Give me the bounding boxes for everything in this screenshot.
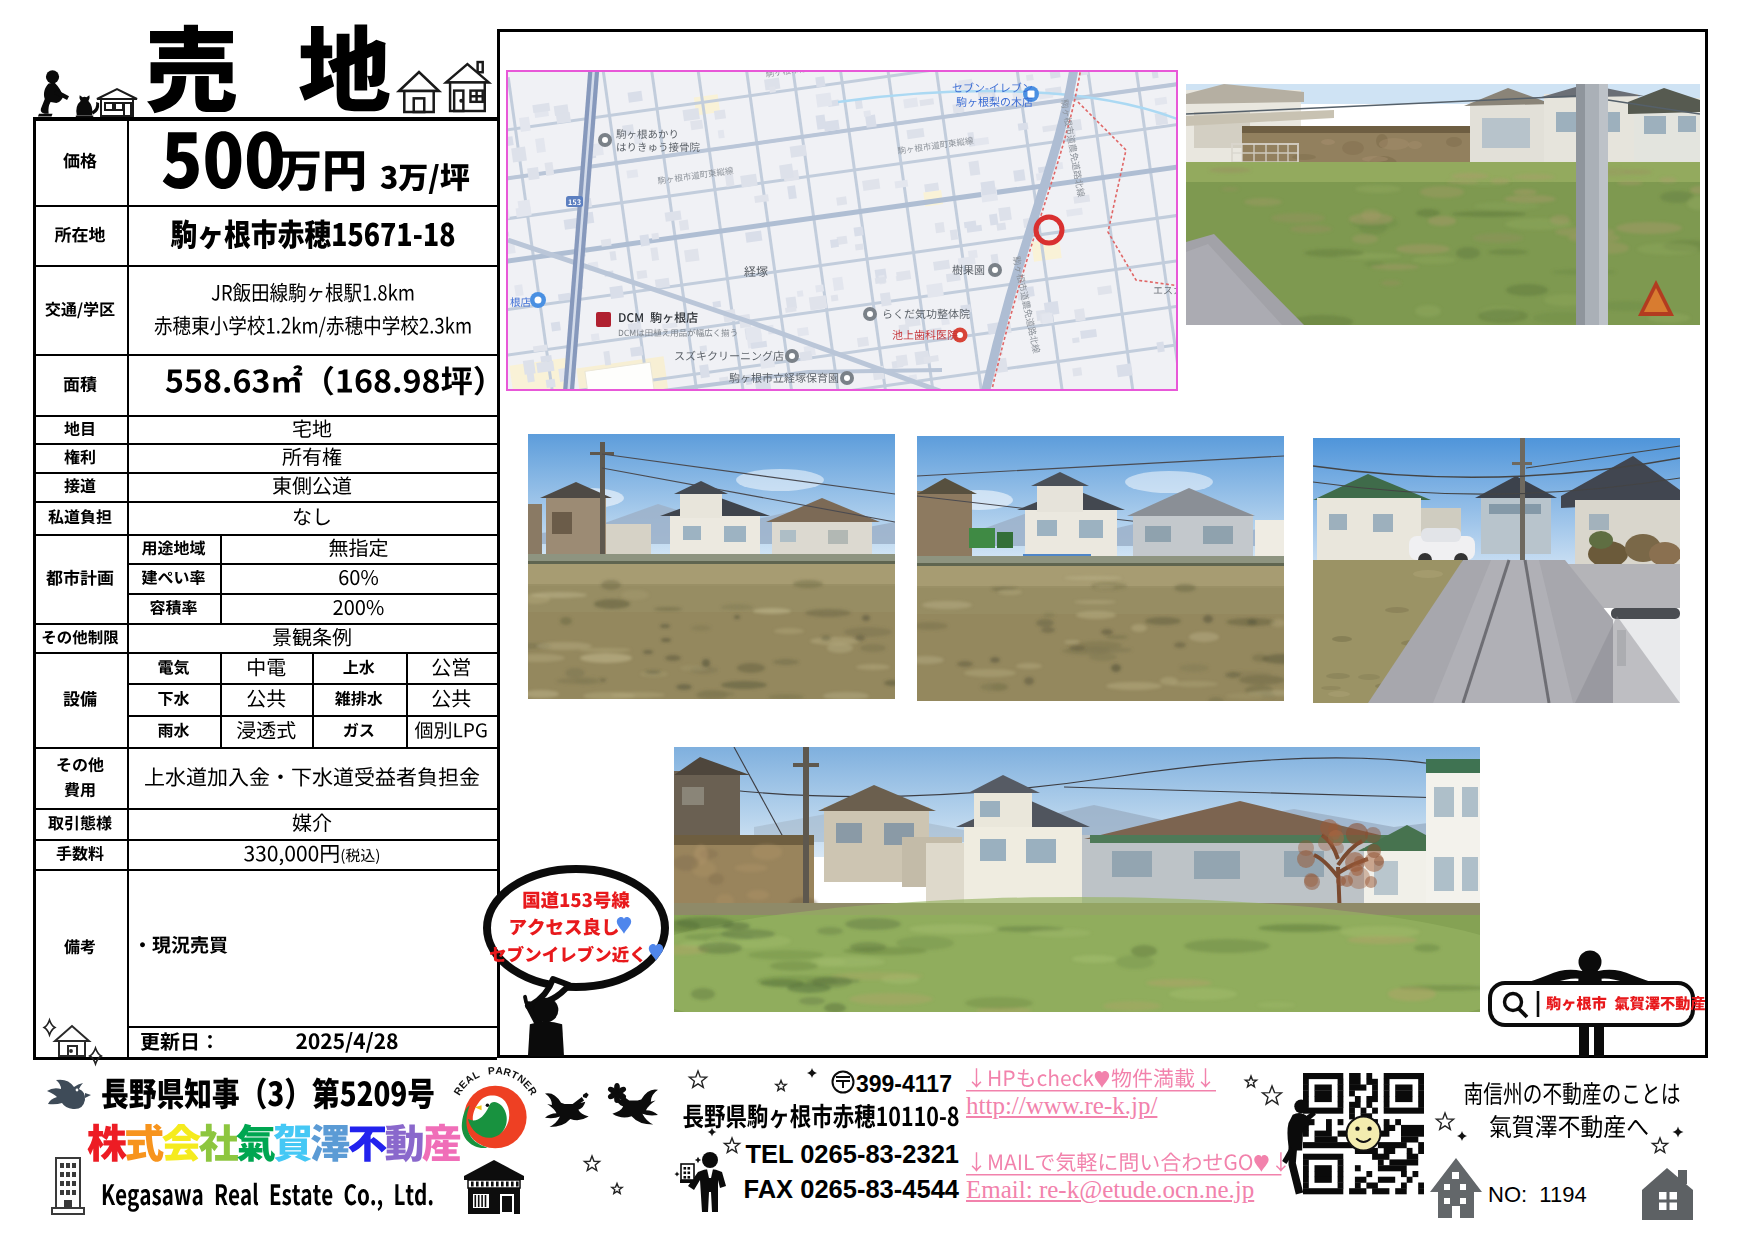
svg-text:P: P bbox=[487, 1065, 495, 1077]
